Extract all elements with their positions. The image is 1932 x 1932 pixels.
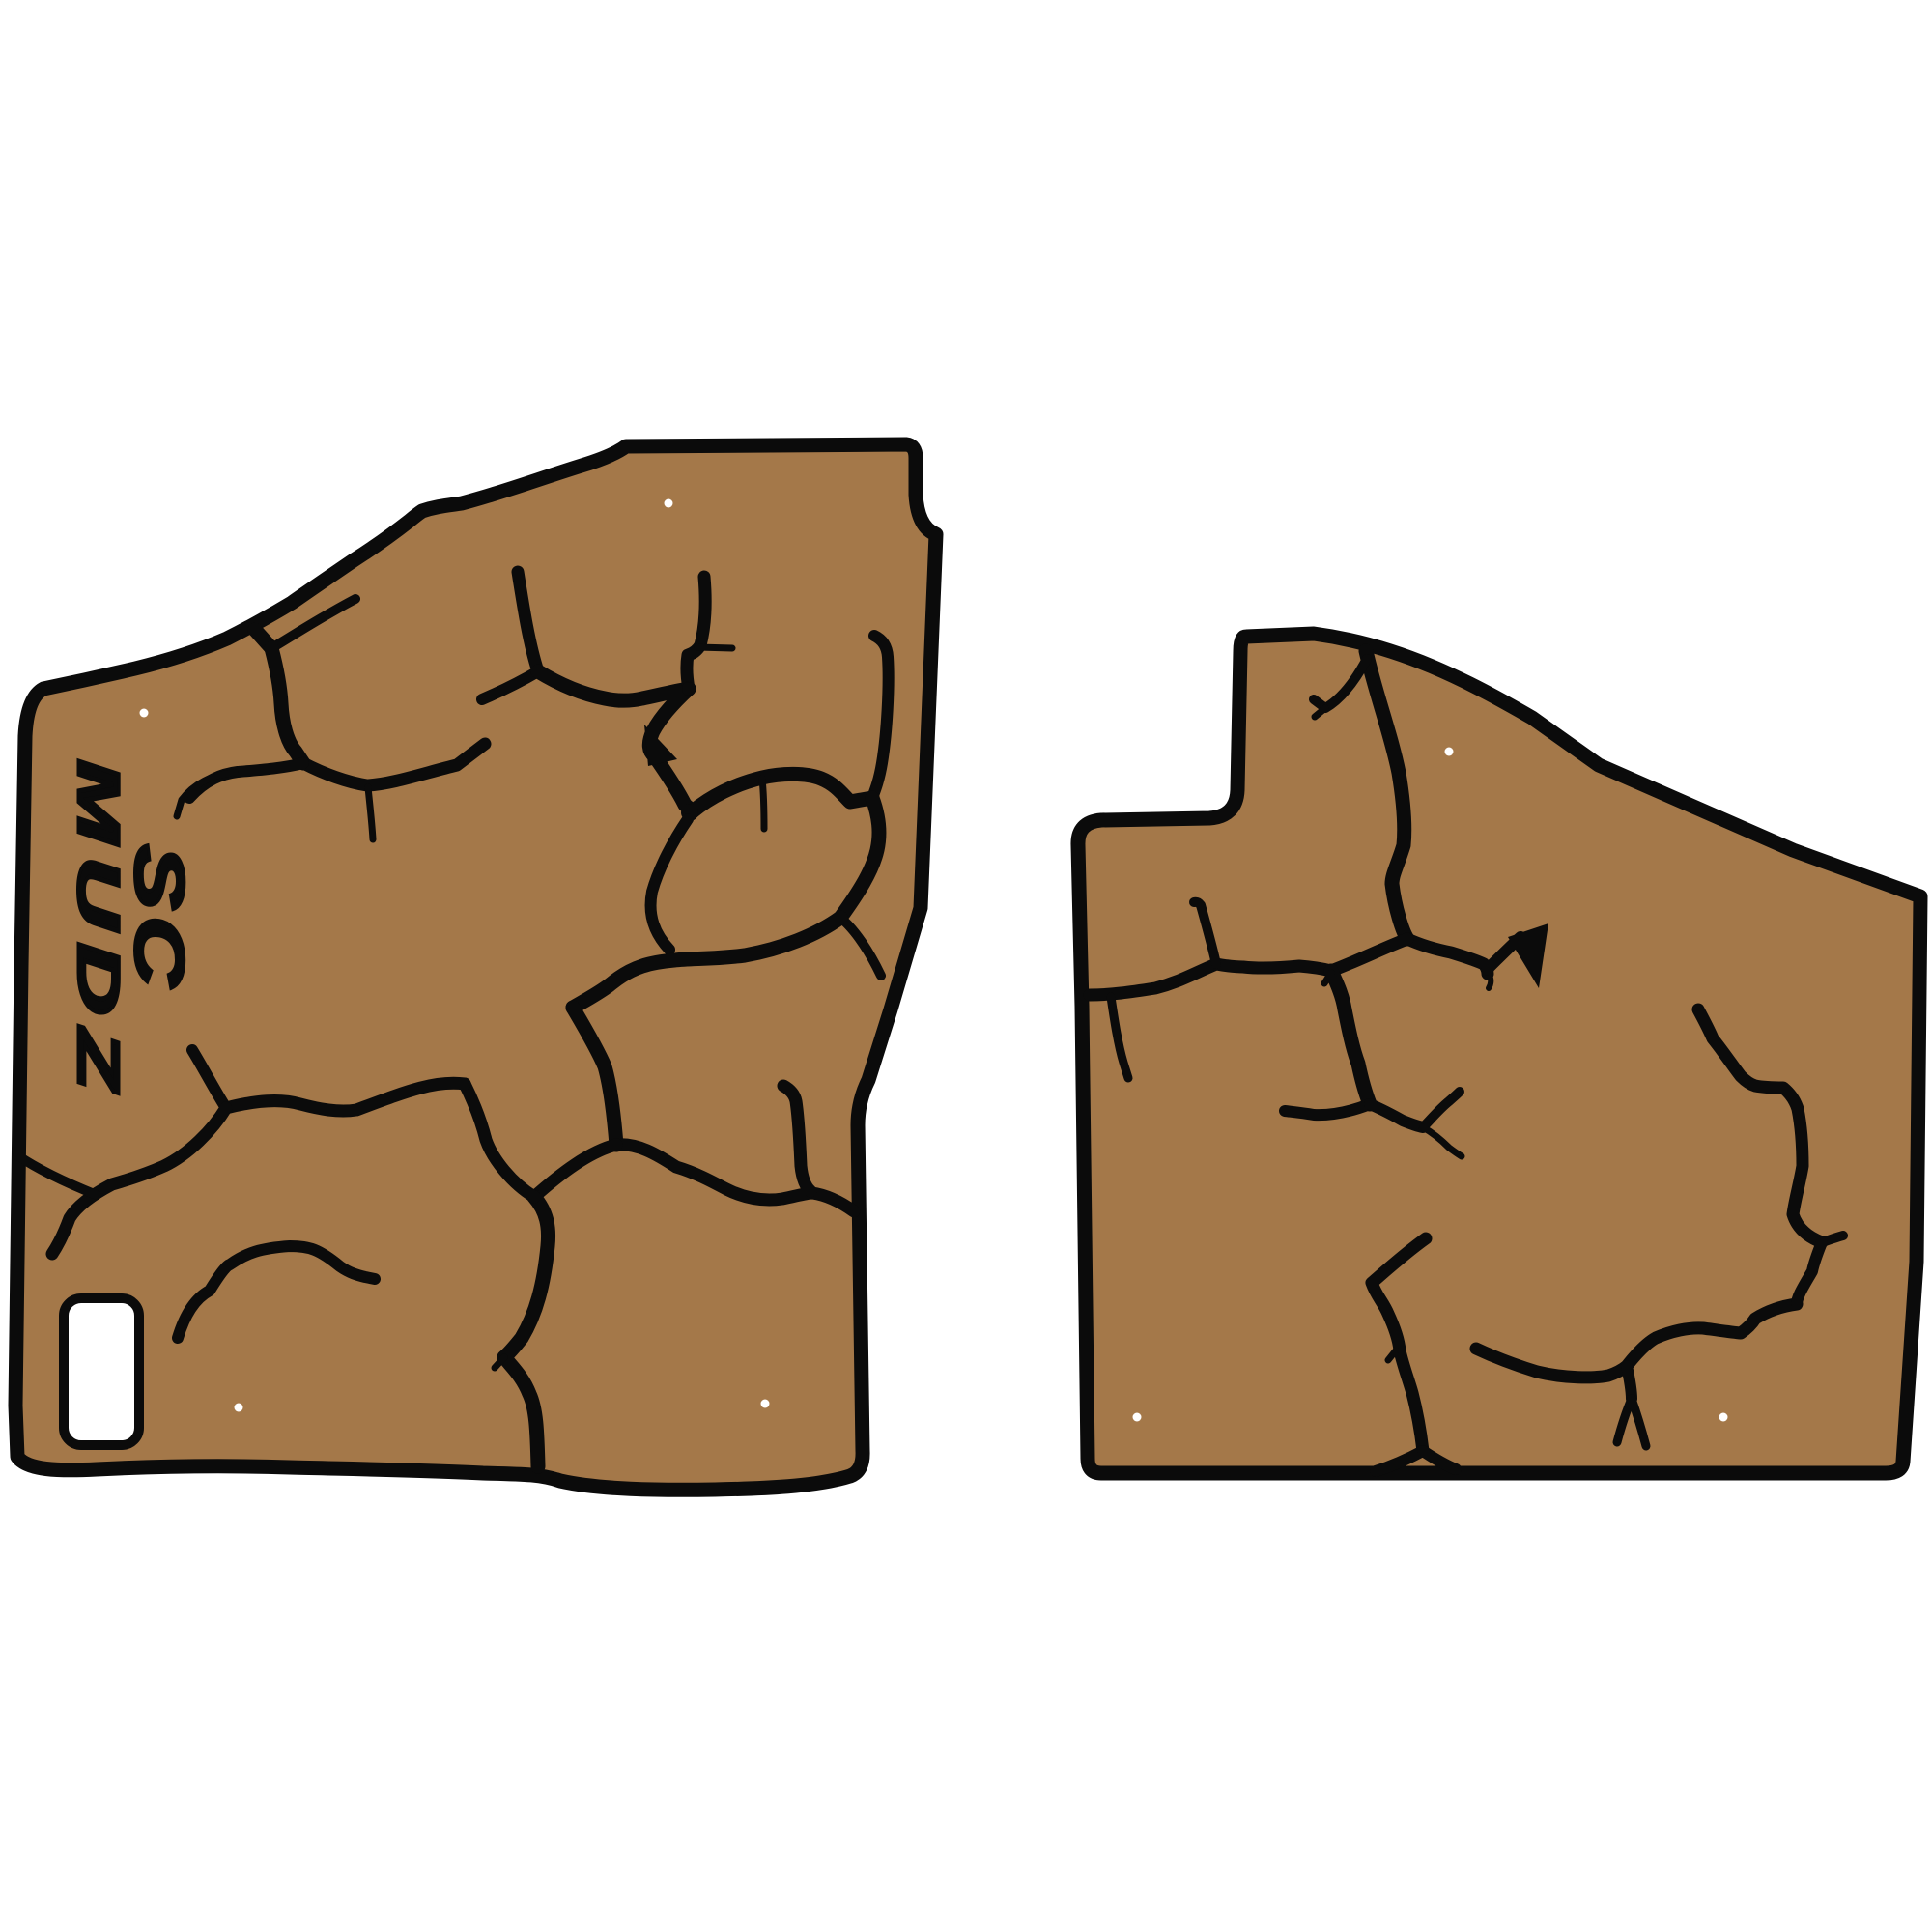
svg-text:SC: SC bbox=[121, 844, 199, 992]
svg-text:MUDZ: MUDZ bbox=[65, 759, 130, 1103]
